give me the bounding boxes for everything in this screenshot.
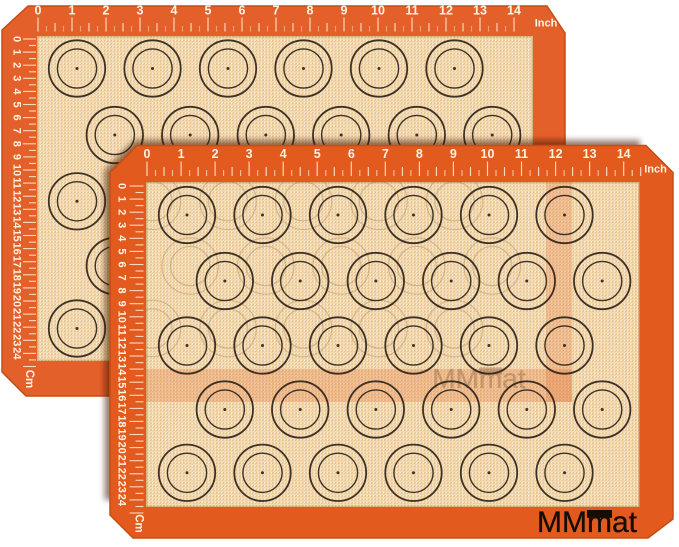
svg-text:0: 0 — [116, 183, 128, 189]
svg-text:17: 17 — [116, 402, 128, 414]
svg-text:23: 23 — [11, 334, 23, 346]
svg-text:22: 22 — [11, 321, 23, 333]
svg-text:4: 4 — [116, 235, 128, 242]
svg-text:14: 14 — [617, 147, 631, 161]
svg-text:0: 0 — [35, 4, 42, 18]
svg-text:1: 1 — [11, 49, 23, 55]
svg-text:Inch: Inch — [644, 164, 667, 176]
svg-text:14: 14 — [507, 4, 521, 18]
svg-text:2: 2 — [116, 209, 128, 215]
svg-text:7: 7 — [116, 275, 128, 281]
svg-text:2: 2 — [103, 4, 110, 18]
svg-text:11: 11 — [116, 324, 128, 336]
svg-text:5: 5 — [11, 101, 23, 107]
svg-text:5: 5 — [205, 4, 212, 18]
svg-text:9: 9 — [116, 301, 128, 307]
svg-text:Cm: Cm — [23, 370, 35, 389]
svg-text:Inch: Inch — [535, 18, 558, 30]
svg-text:14: 14 — [11, 216, 23, 229]
svg-text:2: 2 — [212, 147, 219, 161]
svg-text:18: 18 — [11, 269, 23, 281]
svg-text:0: 0 — [11, 36, 23, 42]
svg-text:19: 19 — [116, 428, 128, 440]
svg-text:14: 14 — [116, 363, 128, 376]
svg-text:1: 1 — [178, 147, 185, 161]
svg-text:8: 8 — [307, 4, 314, 18]
svg-text:16: 16 — [11, 242, 23, 254]
svg-text:13: 13 — [11, 203, 23, 215]
svg-text:13: 13 — [583, 147, 597, 161]
svg-text:17: 17 — [11, 256, 23, 268]
svg-text:12: 12 — [549, 147, 563, 161]
svg-text:6: 6 — [116, 261, 128, 267]
svg-text:4: 4 — [280, 147, 287, 161]
svg-text:10: 10 — [11, 164, 23, 176]
svg-text:13: 13 — [473, 4, 487, 18]
svg-text:11: 11 — [515, 147, 528, 161]
svg-text:8: 8 — [11, 141, 23, 147]
svg-text:8: 8 — [116, 288, 128, 294]
svg-text:1: 1 — [69, 4, 76, 18]
svg-text:6: 6 — [11, 115, 23, 121]
svg-text:3: 3 — [11, 75, 23, 81]
svg-text:20: 20 — [11, 295, 23, 307]
svg-text:12: 12 — [11, 190, 23, 202]
svg-text:11: 11 — [405, 4, 418, 18]
svg-text:19: 19 — [11, 282, 23, 294]
svg-text:24: 24 — [116, 494, 128, 507]
svg-text:18: 18 — [116, 415, 128, 427]
svg-text:15: 15 — [11, 229, 23, 241]
svg-text:5: 5 — [116, 248, 128, 254]
svg-text:23: 23 — [116, 481, 128, 493]
svg-text:6: 6 — [348, 147, 355, 161]
svg-text:10: 10 — [481, 147, 495, 161]
svg-text:7: 7 — [11, 128, 23, 134]
svg-text:13: 13 — [116, 350, 128, 362]
svg-text:6: 6 — [239, 4, 246, 18]
svg-text:12: 12 — [116, 337, 128, 349]
svg-text:9: 9 — [11, 154, 23, 160]
svg-text:4: 4 — [11, 88, 23, 95]
svg-text:9: 9 — [341, 4, 348, 18]
svg-text:Cm: Cm — [133, 514, 145, 533]
svg-text:10: 10 — [116, 311, 128, 323]
svg-text:11: 11 — [11, 177, 23, 189]
svg-text:24: 24 — [11, 347, 23, 360]
svg-text:2: 2 — [11, 62, 23, 68]
svg-text:4: 4 — [171, 4, 178, 18]
svg-text:20: 20 — [116, 441, 128, 453]
svg-text:8: 8 — [416, 147, 423, 161]
svg-text:9: 9 — [450, 147, 457, 161]
svg-text:21: 21 — [11, 308, 23, 320]
svg-text:10: 10 — [371, 4, 385, 18]
svg-text:3: 3 — [137, 4, 144, 18]
svg-text:7: 7 — [382, 147, 389, 161]
svg-text:5: 5 — [314, 147, 321, 161]
svg-text:3: 3 — [116, 222, 128, 228]
svg-text:15: 15 — [116, 376, 128, 388]
svg-text:1: 1 — [116, 196, 128, 202]
svg-text:16: 16 — [116, 389, 128, 401]
svg-text:22: 22 — [116, 468, 128, 480]
svg-text:3: 3 — [246, 147, 253, 161]
svg-text:7: 7 — [273, 4, 280, 18]
svg-text:21: 21 — [116, 455, 128, 467]
svg-text:0: 0 — [144, 147, 151, 161]
svg-text:12: 12 — [439, 4, 453, 18]
